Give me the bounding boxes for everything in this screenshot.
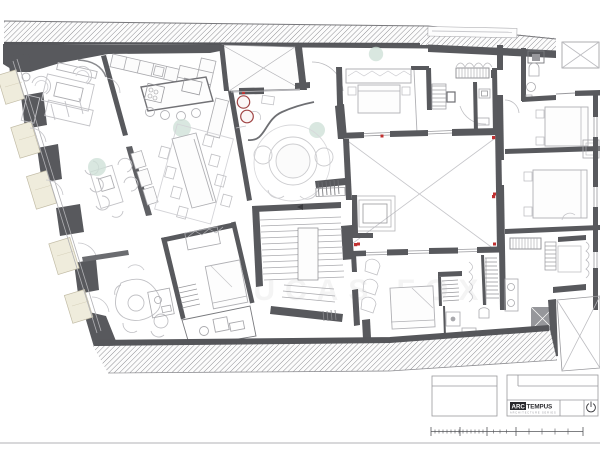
svg-text:ARC: ARC <box>512 404 526 411</box>
svg-text:ARCHITECTURE SERIES: ARCHITECTURE SERIES <box>510 412 557 415</box>
svg-text:TEMPUS: TEMPUS <box>527 404 553 411</box>
